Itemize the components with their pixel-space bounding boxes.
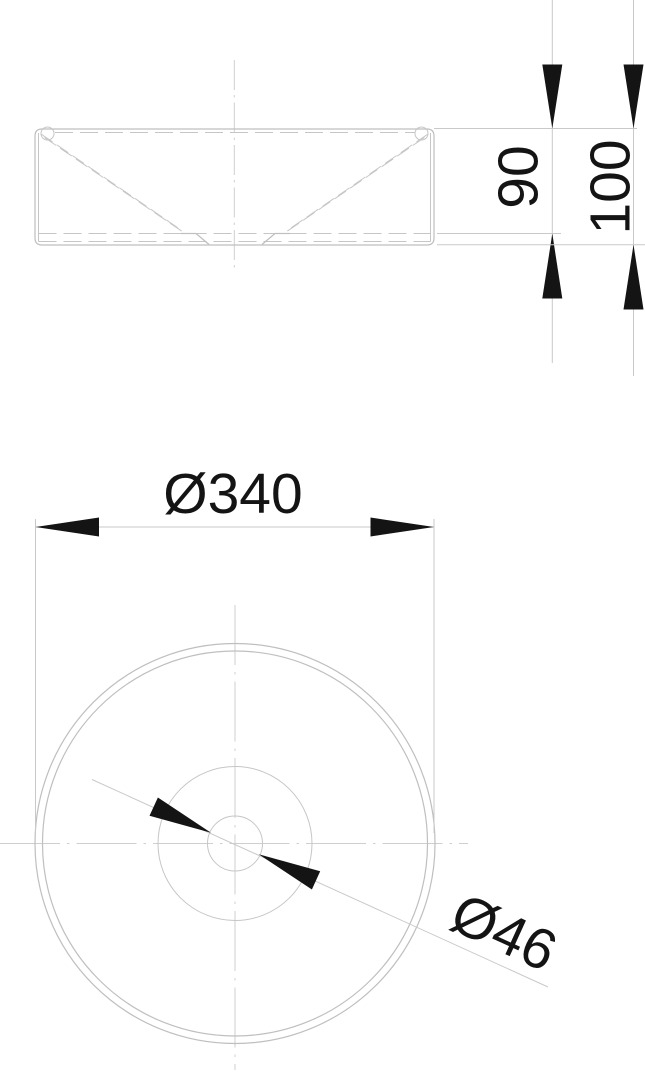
arrowhead-left — [36, 518, 100, 537]
arrowhead-down — [624, 65, 644, 129]
dimension-label-90: 90 — [487, 145, 551, 208]
drain-recess-right-slant — [262, 234, 275, 245]
arrowhead-down — [542, 65, 562, 129]
hidden-bowl-wall-left-outer — [41, 134, 181, 230]
arrowhead-up — [624, 245, 644, 310]
side-elevation-view — [35, 60, 434, 270]
arrowhead-toward-drain-left — [150, 798, 212, 833]
arrowhead-toward-drain-right — [259, 854, 321, 889]
dimension-label-100: 100 — [579, 139, 643, 234]
dimension-label-340: Ø340 — [163, 462, 302, 526]
hidden-bowl-wall-right-inner — [285, 138, 425, 234]
dimension-drain-diameter-46: Ø46 — [92, 780, 566, 988]
plan-view — [0, 605, 468, 1070]
hidden-bowl-wall-left-inner — [45, 138, 185, 234]
arrowhead-up — [542, 234, 562, 299]
dimension-label-46: Ø46 — [442, 881, 567, 984]
arrowhead-right — [371, 518, 435, 537]
hidden-bowl-wall-right-outer — [288, 134, 428, 230]
drain-recess-left-slant — [196, 234, 209, 245]
technical-drawing: 90 100 Ø340 Ø46 — [0, 0, 645, 1080]
